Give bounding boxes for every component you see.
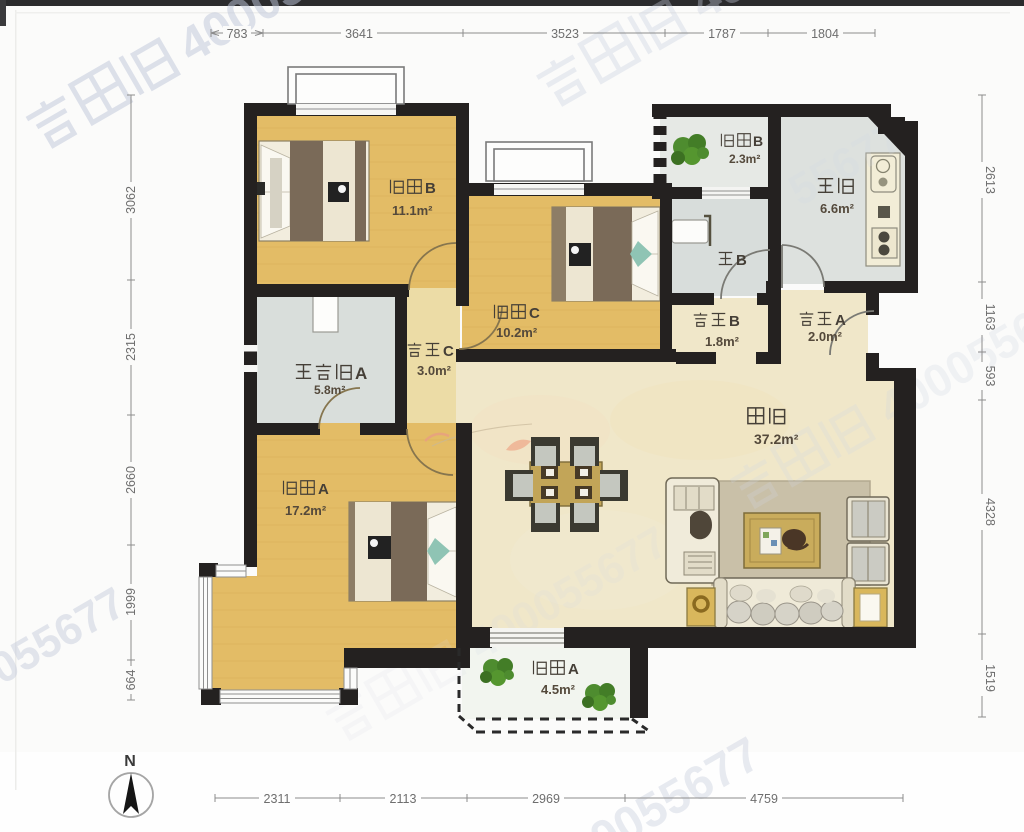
svg-text:1787: 1787 <box>708 27 736 41</box>
svg-text:3641: 3641 <box>345 27 373 41</box>
svg-text:37.2m²: 37.2m² <box>754 431 799 447</box>
svg-text:1.8m²: 1.8m² <box>705 334 740 349</box>
svg-text:3062: 3062 <box>124 186 138 214</box>
svg-text:A: A <box>318 481 329 498</box>
svg-text:A: A <box>568 661 579 678</box>
svg-text:4.5m²: 4.5m² <box>541 682 576 697</box>
svg-text:4759: 4759 <box>750 792 778 806</box>
svg-text:1163: 1163 <box>983 304 997 331</box>
svg-text:2969: 2969 <box>532 792 560 806</box>
svg-text:B: B <box>753 133 763 149</box>
svg-text:3523: 3523 <box>551 27 579 41</box>
svg-text:3.0m²: 3.0m² <box>417 363 452 378</box>
svg-text:17.2m²: 17.2m² <box>285 503 327 518</box>
svg-text:1804: 1804 <box>811 27 839 41</box>
svg-text:1519: 1519 <box>983 664 997 692</box>
svg-text:2.0m²: 2.0m² <box>808 329 843 344</box>
svg-text:10.2m²: 10.2m² <box>496 325 538 340</box>
svg-text:C: C <box>529 305 540 322</box>
svg-text:2315: 2315 <box>124 333 138 361</box>
svg-text:2.3m²: 2.3m² <box>729 152 760 166</box>
svg-text:593: 593 <box>983 366 997 387</box>
svg-text:1999: 1999 <box>124 588 138 616</box>
svg-text:B: B <box>736 252 747 269</box>
svg-text:2311: 2311 <box>264 792 291 806</box>
svg-text:B: B <box>425 180 436 197</box>
svg-text:A: A <box>835 312 846 329</box>
svg-text:C: C <box>443 343 454 360</box>
svg-text:2113: 2113 <box>390 792 417 806</box>
svg-text:2613: 2613 <box>983 166 997 194</box>
svg-text:664: 664 <box>124 670 138 691</box>
svg-text:B: B <box>729 313 740 330</box>
svg-text:11.1m²: 11.1m² <box>392 203 433 218</box>
svg-text:A: A <box>355 364 367 383</box>
svg-text:2660: 2660 <box>124 466 138 494</box>
svg-text:5.8m²: 5.8m² <box>314 383 345 397</box>
svg-text:4328: 4328 <box>983 498 997 526</box>
svg-text:783: 783 <box>227 27 248 41</box>
svg-text:N: N <box>124 753 136 770</box>
svg-text:6.6m²: 6.6m² <box>820 201 855 216</box>
